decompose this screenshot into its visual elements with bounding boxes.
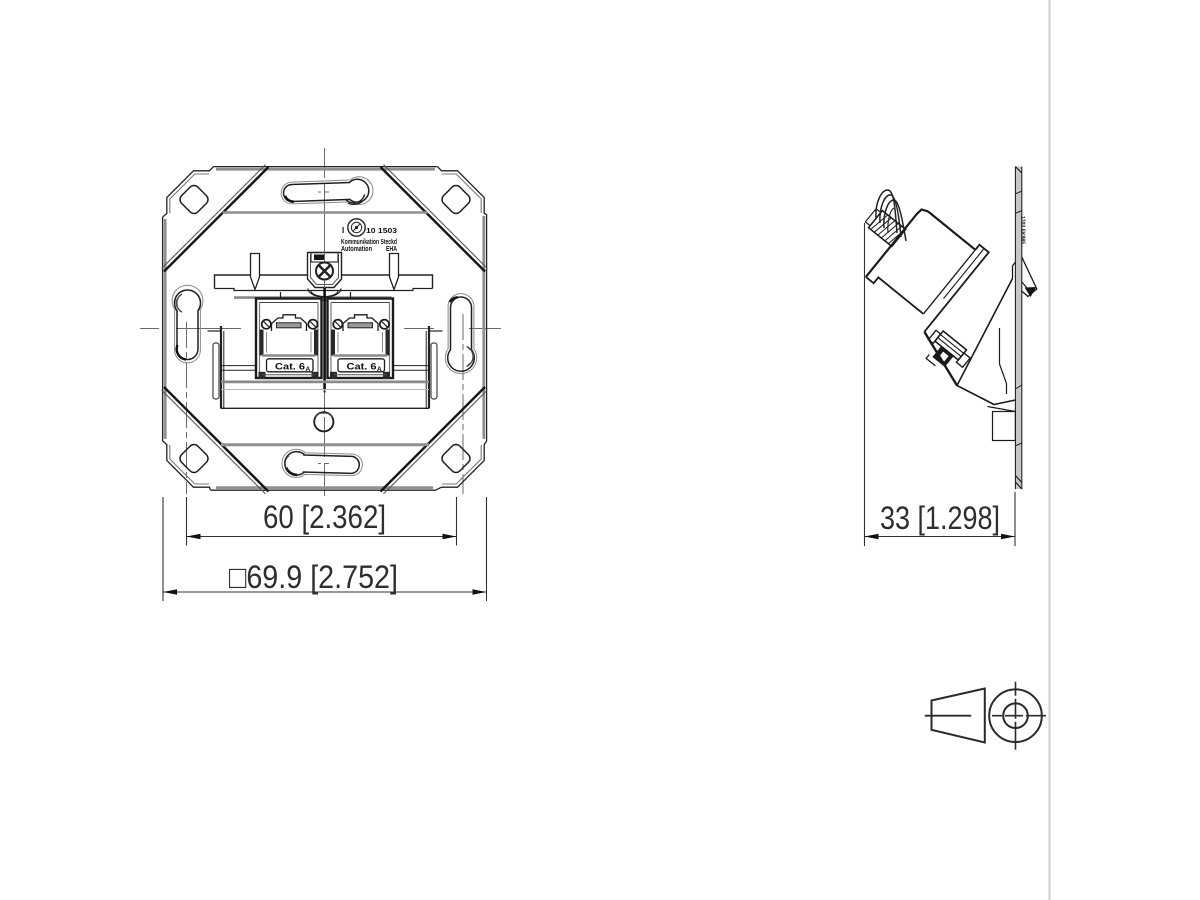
svg-text:I: I — [342, 226, 344, 235]
svg-text:60 [2.362]: 60 [2.362] — [263, 499, 386, 535]
svg-text:33 [1.298]: 33 [1.298] — [880, 500, 1000, 536]
svg-text:EHA: EHA — [386, 244, 397, 253]
svg-text:Automation: Automation — [341, 244, 372, 253]
svg-text:10 1503: 10 1503 — [366, 226, 397, 235]
svg-text:1703 EK985: 1703 EK985 — [1019, 216, 1025, 244]
svg-text:□69.9 [2.752]: □69.9 [2.752] — [229, 559, 398, 595]
